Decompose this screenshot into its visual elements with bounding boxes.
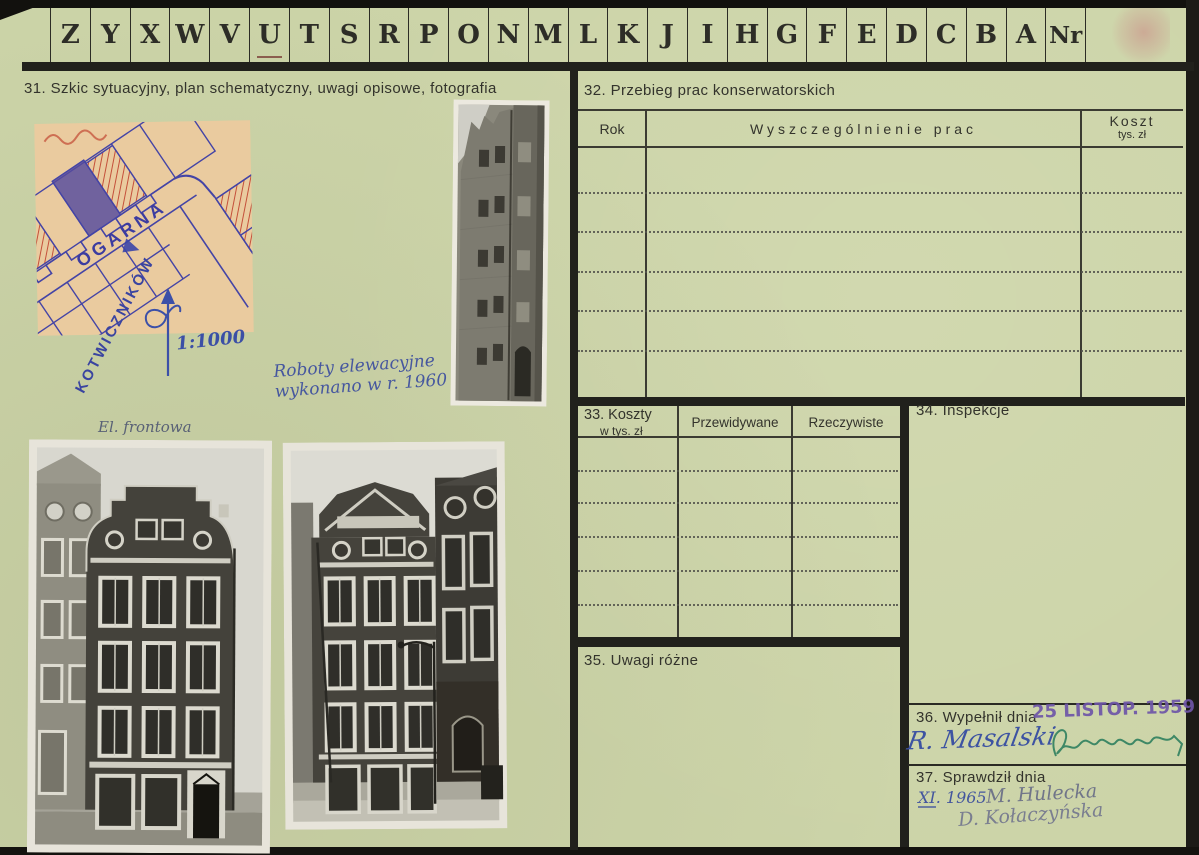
tab-letter-N: N: [488, 8, 528, 62]
checked-date-underline: [918, 806, 936, 808]
t33-row-rule: [578, 502, 898, 504]
tab-letter-D: D: [886, 8, 926, 62]
tab-letter-Z: Z: [50, 8, 90, 62]
tab-letter-A: A: [1006, 8, 1046, 62]
tab-letter-L: L: [568, 8, 608, 62]
tab-letter-B: B: [966, 8, 1006, 62]
tab-letter-K: K: [607, 8, 647, 62]
t32-row-rule: [578, 231, 1182, 233]
checked-date: XI. 1965: [918, 788, 987, 807]
t32-row-rule: [578, 350, 1182, 352]
right-column-divider: [900, 397, 909, 847]
tab-letter-H: H: [727, 8, 767, 62]
section34-title: 34. Inspekcje: [916, 402, 1010, 419]
signature-filled-by: R. Masalski: [905, 721, 1058, 755]
tab-letter-E: E: [846, 8, 886, 62]
t33-header-rule: [578, 436, 900, 438]
signature-countersign-illegible: [1042, 716, 1190, 766]
tab-letter-X: X: [130, 8, 170, 62]
t33-col-rzeczywiste: Rzeczywiste: [793, 410, 899, 434]
tab-letter-M: M: [528, 8, 568, 62]
tab-row-stamp-smudge: [1112, 8, 1170, 62]
tab-letter-G: G: [767, 8, 807, 62]
section32-title: 32. Przebieg prac konserwatorskich: [584, 82, 835, 99]
t32-col-rok: Rok: [580, 114, 644, 144]
t32-bottom-rule: [578, 397, 1185, 406]
t33-row-rule: [578, 570, 898, 572]
conservation-record-card: ZYXWVUTSRPONMLKJIHGFEDCBANr 31. Szkic sy…: [0, 0, 1199, 855]
section33-number-title: 33. Koszty: [584, 407, 652, 423]
tab-letter-V: V: [209, 8, 249, 62]
tab-row: ZYXWVUTSRPONMLKJIHGFEDCBANr: [50, 8, 1086, 62]
t32-row-rule: [578, 192, 1182, 194]
center-divider: [570, 71, 578, 850]
tab-letter-C: C: [926, 8, 966, 62]
tab-letter-F: F: [806, 8, 846, 62]
tab-letter-underline: [257, 56, 282, 58]
tab-letter-T: T: [289, 8, 329, 62]
tab-letter-R: R: [369, 8, 409, 62]
t33-bottom-rule: [578, 637, 909, 647]
tab-letter-I: I: [687, 8, 727, 62]
tab-letter-U: U: [249, 8, 289, 62]
t32-top-rule: [578, 109, 1183, 111]
section35-title: 35. Uwagi różne: [584, 652, 698, 669]
t32-col-koszt-sub: tys. zł: [1082, 128, 1182, 142]
t33-row-rule: [578, 536, 898, 538]
t32-row-rule: [578, 271, 1182, 273]
tab-nr: Nr: [1045, 8, 1086, 62]
t32-rok-divider: [645, 109, 647, 401]
t33-row-rule: [578, 470, 898, 472]
tab-letter-W: W: [169, 8, 209, 62]
t32-row-rule: [578, 310, 1182, 312]
tab-letter-J: J: [647, 8, 687, 62]
t32-koszt-divider: [1080, 109, 1082, 401]
t32-header-rule: [578, 146, 1183, 148]
photo-front-elevation-1: [27, 439, 272, 853]
handwritten-note: Roboty elewacyjne wykonano w r. 1960: [273, 350, 448, 402]
tab-letter-S: S: [329, 8, 369, 62]
tab-letter-Y: Y: [90, 8, 130, 62]
scan-edge-top: [0, 0, 1199, 8]
photo-side-elevation: [450, 100, 549, 407]
header-rule: [22, 62, 1194, 71]
t33-row-rule: [578, 604, 898, 606]
t33-col-przewidywane: Przewidywane: [679, 410, 791, 434]
photo-caption: El. frontowa: [98, 418, 192, 436]
scan-edge-corner: [0, 6, 38, 20]
tab-letter-O: O: [448, 8, 488, 62]
section33-title: 33. Koszty w tys. zł: [584, 407, 652, 439]
photo-front-elevation-2: [283, 441, 508, 830]
tab-letter-P: P: [408, 8, 448, 62]
t32-col-prace: Wyszczególnienie prac: [647, 114, 1080, 144]
s37-top-rule: [908, 764, 1186, 766]
section31-title: 31. Szkic sytuacyjny, plan schematyczny,…: [24, 80, 497, 97]
